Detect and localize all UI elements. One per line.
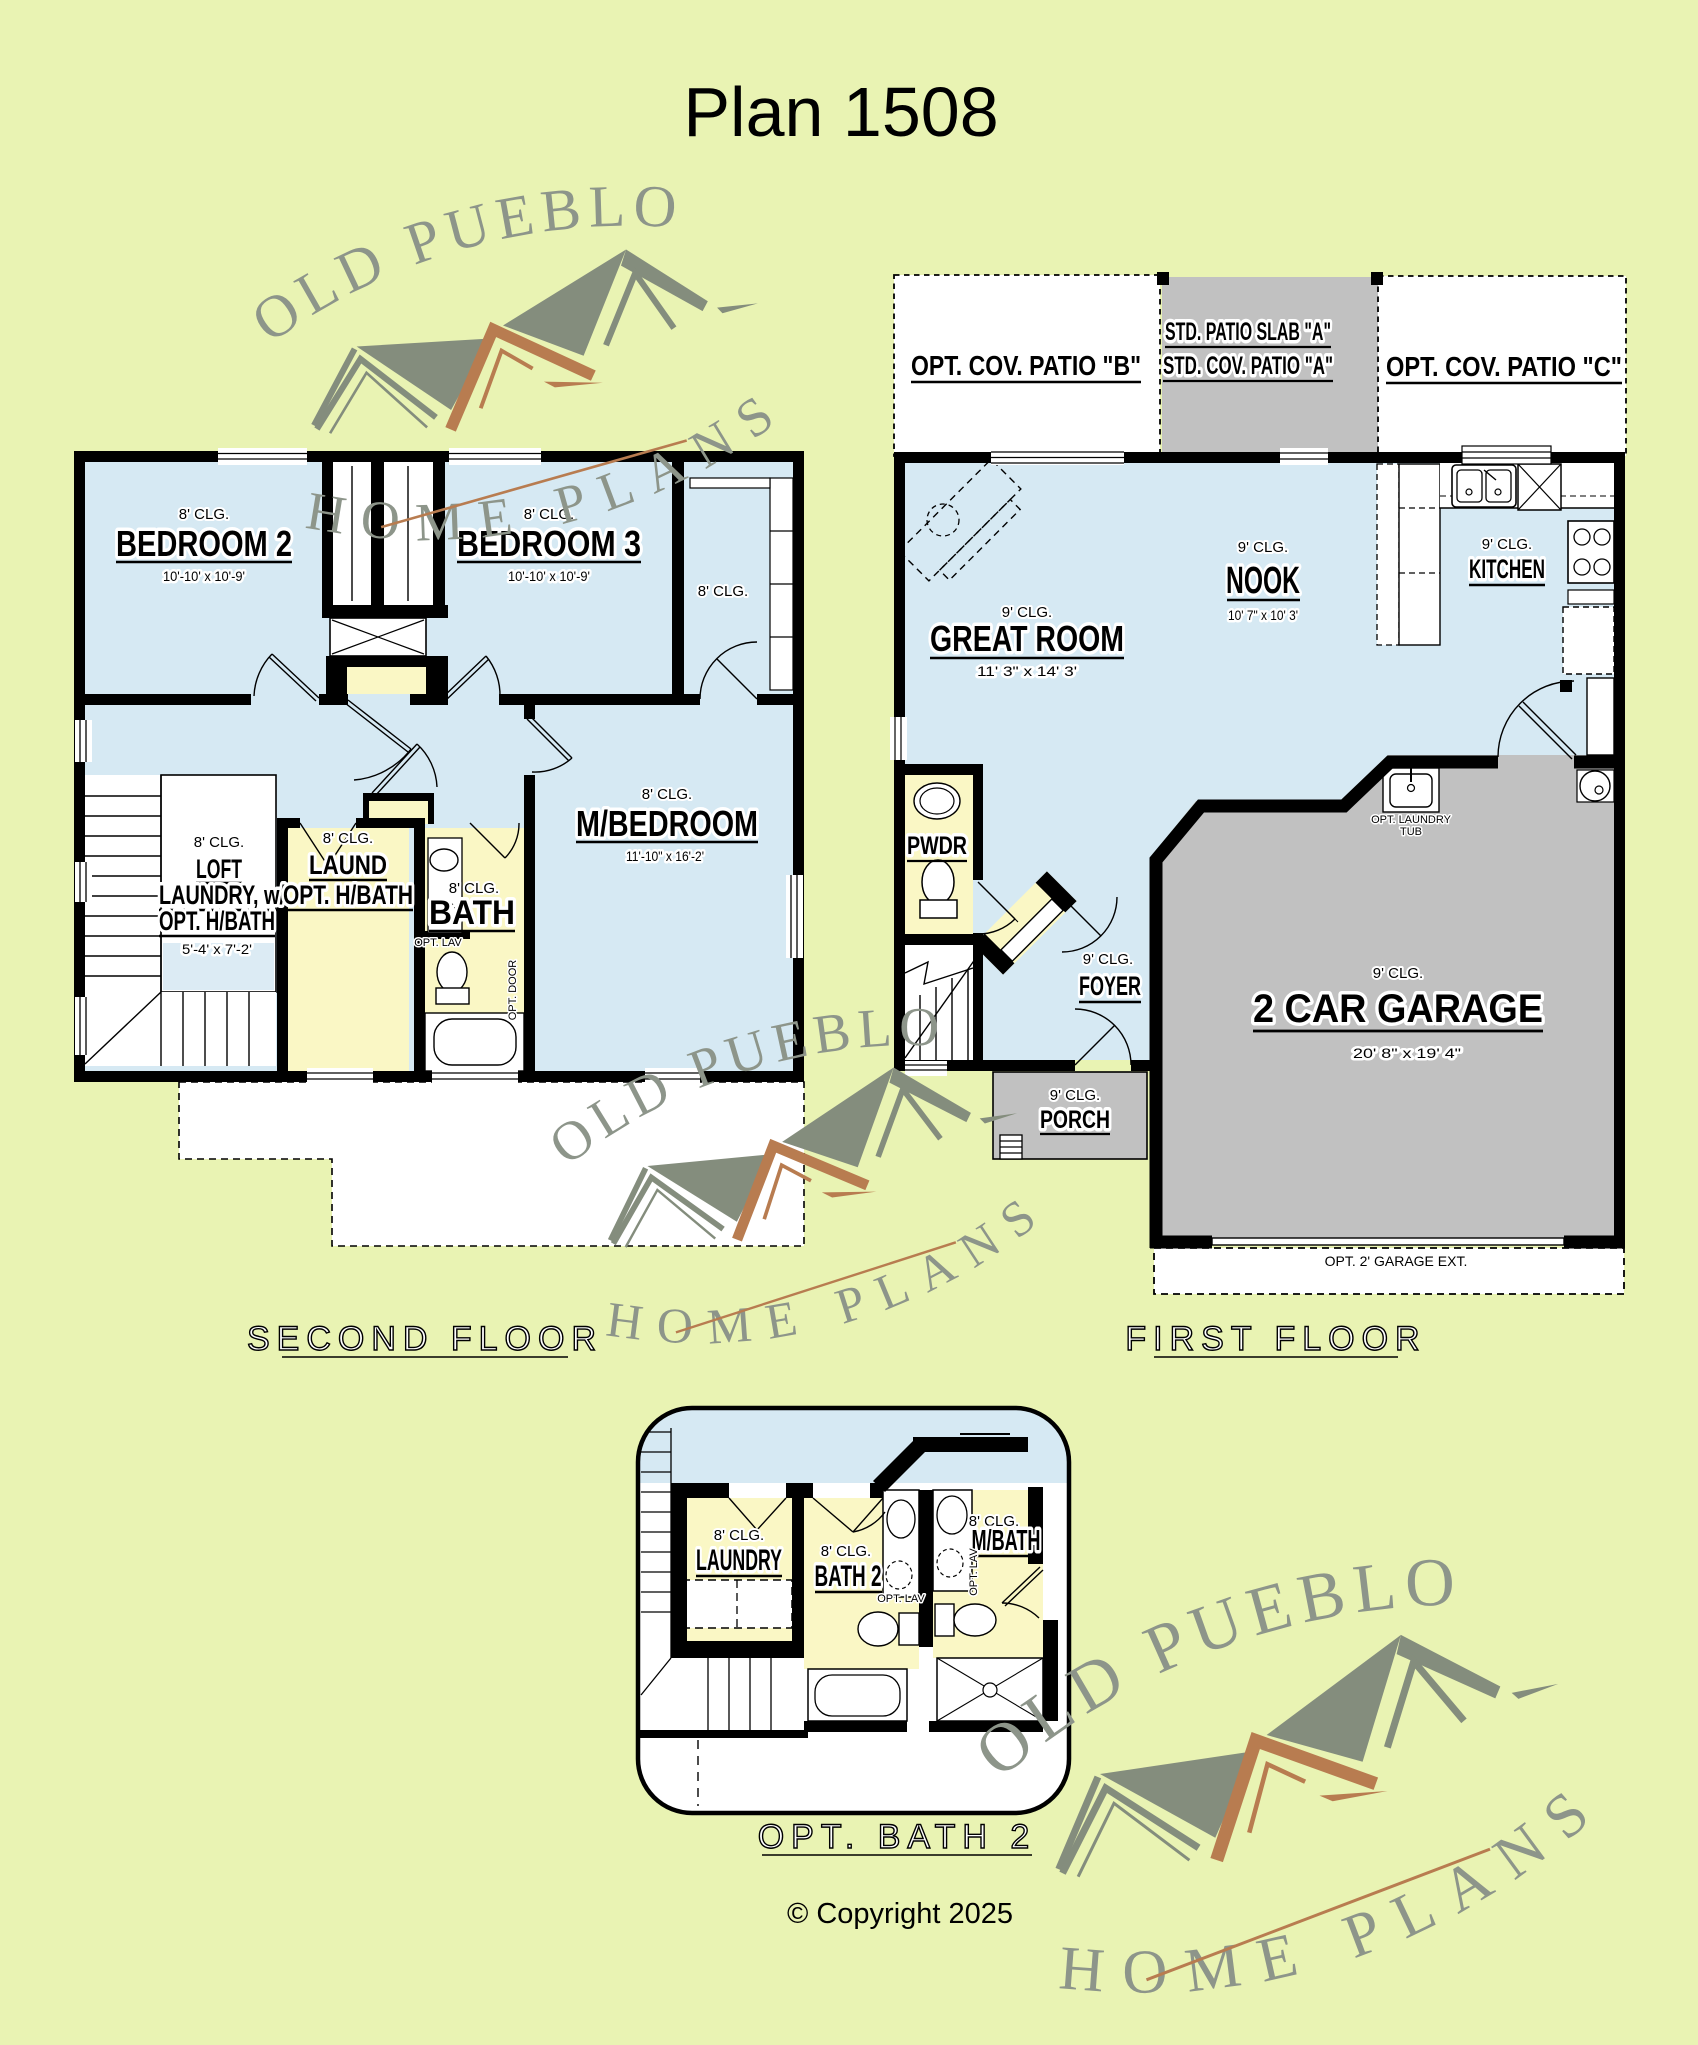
svg-text:OPT. H/BATH: OPT. H/BATH (283, 880, 413, 910)
svg-text:10' 7" x 10' 3': 10' 7" x 10' 3' (1228, 607, 1298, 623)
svg-text:OPT. COV. PATIO "B": OPT. COV. PATIO "B" (911, 350, 1141, 381)
svg-text:9' CLG.: 9' CLG. (1083, 951, 1133, 968)
svg-text:NOOK: NOOK (1226, 560, 1300, 602)
svg-text:OPT. 2' GARAGE EXT.: OPT. 2' GARAGE EXT. (1325, 1253, 1468, 1269)
svg-text:OPT. LAV: OPT. LAV (877, 1593, 925, 1605)
svg-text:9' CLG.: 9' CLG. (1050, 1087, 1100, 1104)
svg-text:8' CLG.: 8' CLG. (179, 506, 229, 523)
svg-text:M/BATH: M/BATH (972, 1525, 1041, 1557)
svg-text:OPT. H/BATH: OPT. H/BATH (159, 906, 275, 936)
svg-text:TUB: TUB (1400, 826, 1422, 838)
svg-text:BATH: BATH (429, 894, 515, 932)
svg-text:PWDR: PWDR (907, 832, 967, 860)
svg-text:20' 8" x 19' 4": 20' 8" x 19' 4" (1353, 1045, 1461, 1061)
svg-text:OPT. BATH 2: OPT. BATH 2 (758, 1818, 1037, 1856)
svg-text:LAUND: LAUND (309, 850, 387, 880)
svg-text:SECOND FLOOR: SECOND FLOOR (247, 1320, 603, 1358)
svg-text:STD. PATIO SLAB "A": STD. PATIO SLAB "A" (1165, 318, 1331, 346)
svg-text:9' CLG.: 9' CLG. (1482, 536, 1532, 553)
svg-text:9' CLG.: 9' CLG. (1238, 539, 1288, 556)
svg-text:GREAT ROOM: GREAT ROOM (930, 618, 1124, 659)
svg-text:10'-10' x 10'-9': 10'-10' x 10'-9' (163, 568, 245, 584)
svg-text:Plan 1508: Plan 1508 (683, 73, 998, 151)
svg-text:8' CLG.: 8' CLG. (642, 786, 692, 803)
svg-text:11' 3" x 14' 3': 11' 3" x 14' 3' (977, 663, 1077, 679)
svg-text:10'-10' x 10'-9': 10'-10' x 10'-9' (508, 568, 590, 584)
svg-text:8' CLG.: 8' CLG. (821, 1543, 871, 1560)
svg-text:OPT. LAV: OPT. LAV (414, 937, 462, 949)
svg-text:BATH 2: BATH 2 (815, 1560, 882, 1593)
svg-text:OPT. LAV: OPT. LAV (968, 1548, 980, 1596)
svg-text:M/BEDROOM: M/BEDROOM (576, 803, 758, 844)
svg-text:8' CLG.: 8' CLG. (323, 830, 373, 847)
svg-text:© Copyright 2025: © Copyright 2025 (787, 1898, 1013, 1930)
svg-text:STD. COV. PATIO "A": STD. COV. PATIO "A" (1163, 352, 1333, 380)
svg-text:FOYER: FOYER (1079, 971, 1141, 1001)
svg-text:LAUNDRY: LAUNDRY (696, 1544, 782, 1577)
svg-text:11'-10" x 16'-2': 11'-10" x 16'-2' (626, 848, 704, 864)
svg-text:OPT. COV. PATIO "C": OPT. COV. PATIO "C" (1386, 351, 1622, 382)
svg-text:5'-4' x 7'-2': 5'-4' x 7'-2' (182, 941, 252, 957)
svg-text:FIRST FLOOR: FIRST FLOOR (1125, 1320, 1426, 1358)
svg-text:8' CLG.: 8' CLG. (714, 1527, 764, 1544)
svg-text:9' CLG.: 9' CLG. (1373, 965, 1423, 982)
svg-text:KITCHEN: KITCHEN (1469, 554, 1545, 584)
svg-text:BEDROOM 2: BEDROOM 2 (116, 523, 292, 564)
svg-text:8' CLG.: 8' CLG. (194, 834, 244, 851)
svg-text:8' CLG.: 8' CLG. (698, 583, 748, 600)
svg-text:OPT. DOOR: OPT. DOOR (507, 960, 519, 1021)
svg-text:PORCH: PORCH (1040, 1106, 1110, 1134)
svg-text:2 CAR GARAGE: 2 CAR GARAGE (1253, 987, 1543, 1031)
svg-text:OPT. LAUNDRY: OPT. LAUNDRY (1371, 814, 1452, 826)
